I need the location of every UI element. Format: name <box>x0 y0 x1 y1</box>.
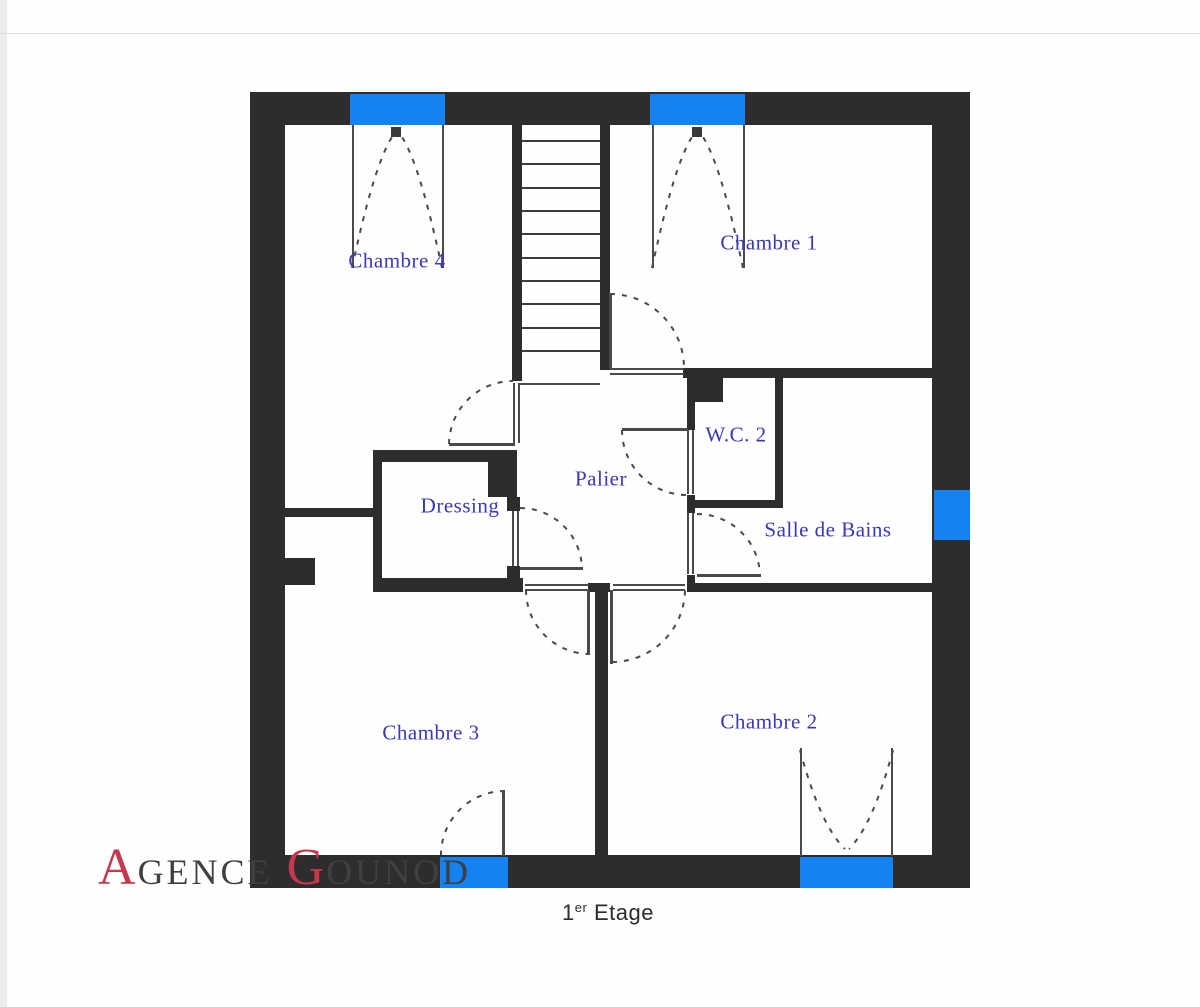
door-leaf-line <box>800 748 802 856</box>
floor-number: 1 <box>562 900 575 925</box>
wall <box>285 558 315 585</box>
door-swing-arc-chambre-1 <box>610 294 684 368</box>
stair-step <box>522 210 600 212</box>
window-casement-arc <box>800 750 845 849</box>
floor-word: Etage <box>594 900 654 925</box>
door-leaf-line <box>513 383 515 443</box>
stair-step <box>522 303 600 305</box>
door-leaf-line <box>613 584 685 586</box>
window <box>800 857 893 888</box>
floor-title: 1er Etage <box>562 900 654 926</box>
door-leaf-line <box>512 511 514 566</box>
window <box>934 490 970 540</box>
door-leaf-line <box>587 590 590 655</box>
door-leaf-line <box>520 383 600 385</box>
wall <box>373 452 382 590</box>
wall <box>250 92 285 888</box>
watermark-initial-a: A <box>98 839 138 896</box>
door-swing-arc-chambre-3 <box>526 590 590 654</box>
window-casement-arc <box>652 137 692 268</box>
door-leaf-line <box>520 567 583 570</box>
stair-step <box>522 163 600 165</box>
stair-step <box>522 140 600 142</box>
door-leaf-line <box>610 373 684 375</box>
watermark-text: GENCE <box>138 852 273 892</box>
door-leaf-line <box>610 368 684 370</box>
door-leaf-line <box>449 443 515 446</box>
wall <box>507 497 520 511</box>
wall <box>687 400 695 430</box>
wall <box>285 508 373 517</box>
wall <box>488 450 517 497</box>
stair-step <box>522 233 600 235</box>
page: Chambre 4Chambre 1W.C. 2PalierDressingSa… <box>0 0 1200 1007</box>
door-leaf-line <box>525 584 589 586</box>
door-leaf-line <box>687 513 689 574</box>
door-leaf-line <box>517 511 519 566</box>
wall <box>373 578 523 592</box>
wall <box>687 583 932 592</box>
stair-step <box>522 280 600 282</box>
wall <box>687 375 723 402</box>
stair-step <box>522 187 600 189</box>
room-label-palier: Palier <box>575 467 627 492</box>
door-leaf-line <box>652 125 654 268</box>
door-leaf-line <box>687 430 689 494</box>
room-label-chambre-3: Chambre 3 <box>382 721 479 746</box>
room-label-salle-de-bains: Salle de Bains <box>764 518 891 543</box>
door-leaf-line <box>502 790 505 856</box>
door-leaf-line <box>891 748 893 856</box>
floor-number-suffix: er <box>575 900 588 915</box>
wall <box>512 125 522 381</box>
door-leaf-line <box>697 574 761 577</box>
stair-step <box>522 257 600 259</box>
door-leaf-line <box>622 428 688 431</box>
wall <box>595 583 608 855</box>
wall <box>373 450 497 462</box>
door-swing-arc-chambre-4 <box>449 381 513 444</box>
stair-step <box>522 350 600 352</box>
door-leaf-line <box>692 430 694 494</box>
room-label-dressing: Dressing <box>421 494 500 519</box>
room-label-chambre-4: Chambre 4 <box>348 249 445 274</box>
watermark-text: OUNOD <box>326 852 471 892</box>
agency-watermark: AGENCEGOUNOD <box>98 842 471 894</box>
door-leaf-line <box>610 590 613 664</box>
door-leaf-line <box>518 383 520 443</box>
stair-step <box>522 327 600 329</box>
door-leaf-line <box>352 125 354 268</box>
window-center-stile <box>391 127 401 137</box>
wall <box>775 375 783 508</box>
wall <box>687 500 783 508</box>
room-label-chambre-2: Chambre 2 <box>720 710 817 735</box>
door-swing-arc-dressing <box>520 508 582 570</box>
door-swing-arc-salle-de-bains <box>697 514 760 577</box>
window <box>650 94 745 125</box>
door-leaf-line <box>692 513 694 574</box>
door-leaf-line <box>613 589 685 591</box>
door-swing-arc-chambre-2 <box>612 590 685 662</box>
door-swing-arc-wc-2 <box>622 430 687 495</box>
room-label-wc-2: W.C. 2 <box>705 423 766 448</box>
wall <box>687 575 695 585</box>
window-casement-arc <box>849 750 893 849</box>
door-leaf-line <box>442 125 444 268</box>
watermark-initial-g: G <box>287 839 327 896</box>
window-center-stile <box>692 127 702 137</box>
door-leaf-line <box>525 589 589 591</box>
room-label-chambre-1: Chambre 1 <box>720 231 817 256</box>
window <box>350 94 445 125</box>
door-leaf-line <box>609 293 612 369</box>
